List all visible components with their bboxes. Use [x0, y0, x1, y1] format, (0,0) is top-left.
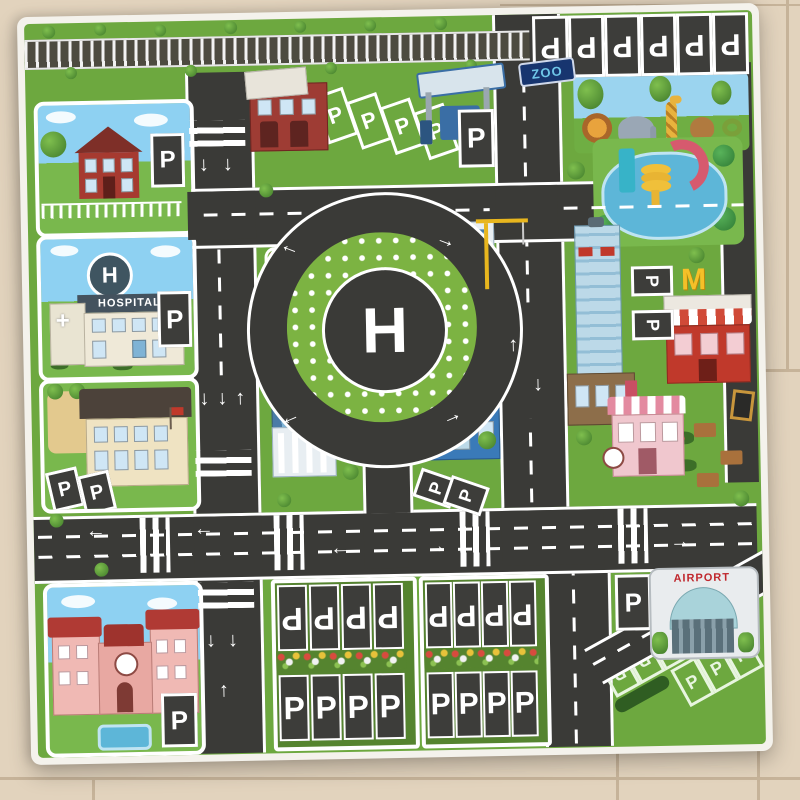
tree-icon: [294, 21, 306, 33]
fuel-pump-icon: [420, 120, 432, 144]
arrow-right-icon: →: [670, 531, 690, 551]
tower-sign: [578, 247, 592, 256]
crosswalk: [273, 515, 304, 571]
crosswalk: [198, 582, 254, 609]
parking-letter: P: [720, 26, 741, 60]
arrow-left-icon: ←: [86, 521, 106, 541]
parking-stall: P: [481, 581, 509, 648]
crosswalk: [195, 450, 251, 477]
parking-letter: P: [486, 687, 507, 721]
pool: [97, 724, 151, 751]
tree-icon: [94, 23, 106, 35]
mansion-panel: P P: [39, 377, 202, 514]
parking-letter: P: [159, 146, 176, 174]
tree-icon: [325, 62, 337, 74]
awning: [662, 308, 752, 326]
parking-letter: P: [612, 28, 633, 62]
parking-stall: P: [277, 585, 308, 652]
farmhouse: [68, 126, 149, 204]
parking-stall: P: [631, 266, 674, 297]
flower-strip: [424, 646, 538, 668]
arrow-right-icon: →: [426, 536, 446, 556]
golden-arches-icon: M: [681, 265, 707, 295]
parking-stall: P: [425, 582, 453, 649]
parking-letter: P: [313, 599, 335, 636]
parking-stall: P: [632, 310, 675, 341]
zoo-sign-text: ZOO: [531, 63, 564, 82]
parking-stall: P: [309, 584, 340, 651]
parking-letter: P: [281, 599, 303, 636]
parking-letter: P: [347, 688, 369, 725]
parking-letter: P: [642, 319, 663, 331]
parking-letter: P: [457, 597, 478, 631]
parking-stall: P: [311, 674, 342, 741]
parking-stall: P: [150, 133, 185, 188]
picnic-table: [720, 450, 742, 464]
parking-letter: P: [377, 597, 399, 634]
tree-icon: [364, 19, 376, 31]
play-mat: P P P P P P ZOO: [17, 3, 773, 765]
awning: [607, 395, 685, 414]
parking-stall: P: [511, 670, 539, 737]
crosswalk: [140, 517, 171, 573]
parking-lot-left: P P P P P P P P: [271, 577, 420, 752]
parking-stall: P: [279, 675, 310, 742]
parking-stall: P: [161, 693, 198, 748]
parking-letter: P: [641, 275, 662, 287]
tile-grout-line: [92, 777, 95, 800]
farmhouse-panel: P: [34, 99, 197, 238]
school-panel: P: [43, 581, 206, 758]
parking-stall: P: [341, 584, 372, 651]
parking-stall: P: [712, 12, 749, 75]
parking-letter: P: [56, 477, 74, 502]
tree-icon: [649, 76, 671, 102]
arrow-left-icon: ←: [330, 538, 350, 558]
parking-stall: P: [483, 671, 511, 738]
flower-strip: [276, 649, 406, 671]
parking-stall: P: [604, 14, 641, 77]
arrow-down-icon: ↓: [199, 155, 209, 175]
tree-icon: [711, 80, 731, 104]
parking-letter: P: [379, 687, 401, 724]
crosswalk: [459, 511, 490, 567]
parking-letter: P: [429, 598, 450, 632]
arrow-down-icon: ↓: [228, 630, 238, 650]
parking-letter: P: [166, 304, 184, 335]
parking-stall: P: [676, 13, 713, 76]
tower-sign: [600, 247, 614, 256]
parking-stall: P: [458, 109, 495, 168]
arrow-down-icon: ↓: [223, 154, 233, 174]
tree-icon: [65, 67, 77, 79]
picnic-table: [697, 473, 719, 487]
red-brick-building: [249, 68, 327, 161]
parking-stall: P: [375, 673, 406, 740]
parking-stall: P: [640, 14, 677, 77]
arrow-left-icon: ←: [194, 519, 214, 539]
parking-letter: P: [358, 106, 380, 135]
tree-icon: [434, 17, 447, 30]
cafe: [609, 389, 685, 490]
arrow-up-icon: ↑: [508, 335, 518, 355]
yellow-spiral-slide-icon: [641, 164, 672, 209]
parking-letter: P: [458, 687, 479, 721]
parking-stall: P: [157, 291, 192, 348]
helipad-letter: H: [361, 293, 409, 368]
parking-stall: P: [373, 583, 404, 650]
hospital-sign-text: HOSPITAL: [98, 296, 161, 309]
arrow-down-icon: ↓: [217, 388, 227, 408]
parking-letter: P: [392, 112, 414, 141]
menu-board-sign: [730, 389, 755, 421]
snake-icon: [722, 118, 742, 136]
slide-tower: [619, 148, 636, 192]
parking-letter: P: [283, 689, 305, 726]
arrow-up-icon: ↑: [219, 680, 229, 700]
giraffe-head: [670, 95, 682, 103]
parking-lot-right: P P P P P P P P: [419, 574, 552, 748]
tree-icon: [577, 79, 604, 109]
parking-letter: P: [170, 705, 188, 736]
parking-letter: P: [624, 587, 642, 618]
mat-surface: P P P P P P ZOO: [24, 10, 766, 758]
arrow-up-icon: ↑: [235, 388, 245, 408]
crosswalk: [189, 120, 245, 147]
airport-sign-text: AIRPORT: [673, 572, 730, 585]
parking-letter: P: [513, 596, 534, 630]
parking-letter: P: [684, 27, 705, 61]
medical-cross-icon: +: [56, 309, 70, 333]
parking-stall: P: [427, 672, 455, 739]
arrow-down-icon: ↓: [206, 630, 216, 650]
arrow-down-icon: ↓: [199, 389, 209, 409]
parking-stall: P: [343, 673, 374, 740]
tree-icon: [42, 25, 55, 38]
airport-sign: AIRPORT: [667, 570, 737, 585]
parking-stall: P: [455, 671, 483, 738]
parking-letter: P: [467, 122, 486, 154]
airport-building: AIRPORT: [648, 558, 756, 664]
tile-grout-line: [786, 0, 789, 372]
fast-food-restaurant: M: [663, 266, 751, 384]
cafe-flag-icon: [625, 380, 637, 396]
tile-grout-line: [0, 777, 800, 780]
tree-icon: [154, 24, 166, 36]
parking-letter: P: [430, 688, 451, 722]
parking-letter: P: [576, 29, 597, 63]
parking-letter: P: [454, 487, 478, 505]
parking-stall: P: [615, 574, 652, 631]
parking-letter: P: [682, 670, 703, 694]
parking-stall: P: [509, 580, 537, 647]
parking-letter: P: [514, 686, 535, 720]
palm-tree-icon: [712, 144, 734, 166]
arrow-down-icon: ↓: [533, 374, 543, 394]
parking-letter: P: [485, 597, 506, 631]
parking-letter: P: [345, 598, 367, 635]
parking-letter: P: [648, 28, 669, 62]
crosswalk: [617, 508, 648, 564]
hospital-roof-letter: H: [102, 262, 118, 288]
flag-icon: [171, 407, 183, 415]
picnic-table: [694, 423, 716, 437]
parking-letter: P: [315, 689, 337, 726]
parking-letter: P: [88, 480, 106, 505]
parking-stall: P: [453, 581, 481, 648]
tree-icon: [224, 21, 237, 34]
hospital-panel: H HOSPITAL + P: [36, 233, 199, 382]
